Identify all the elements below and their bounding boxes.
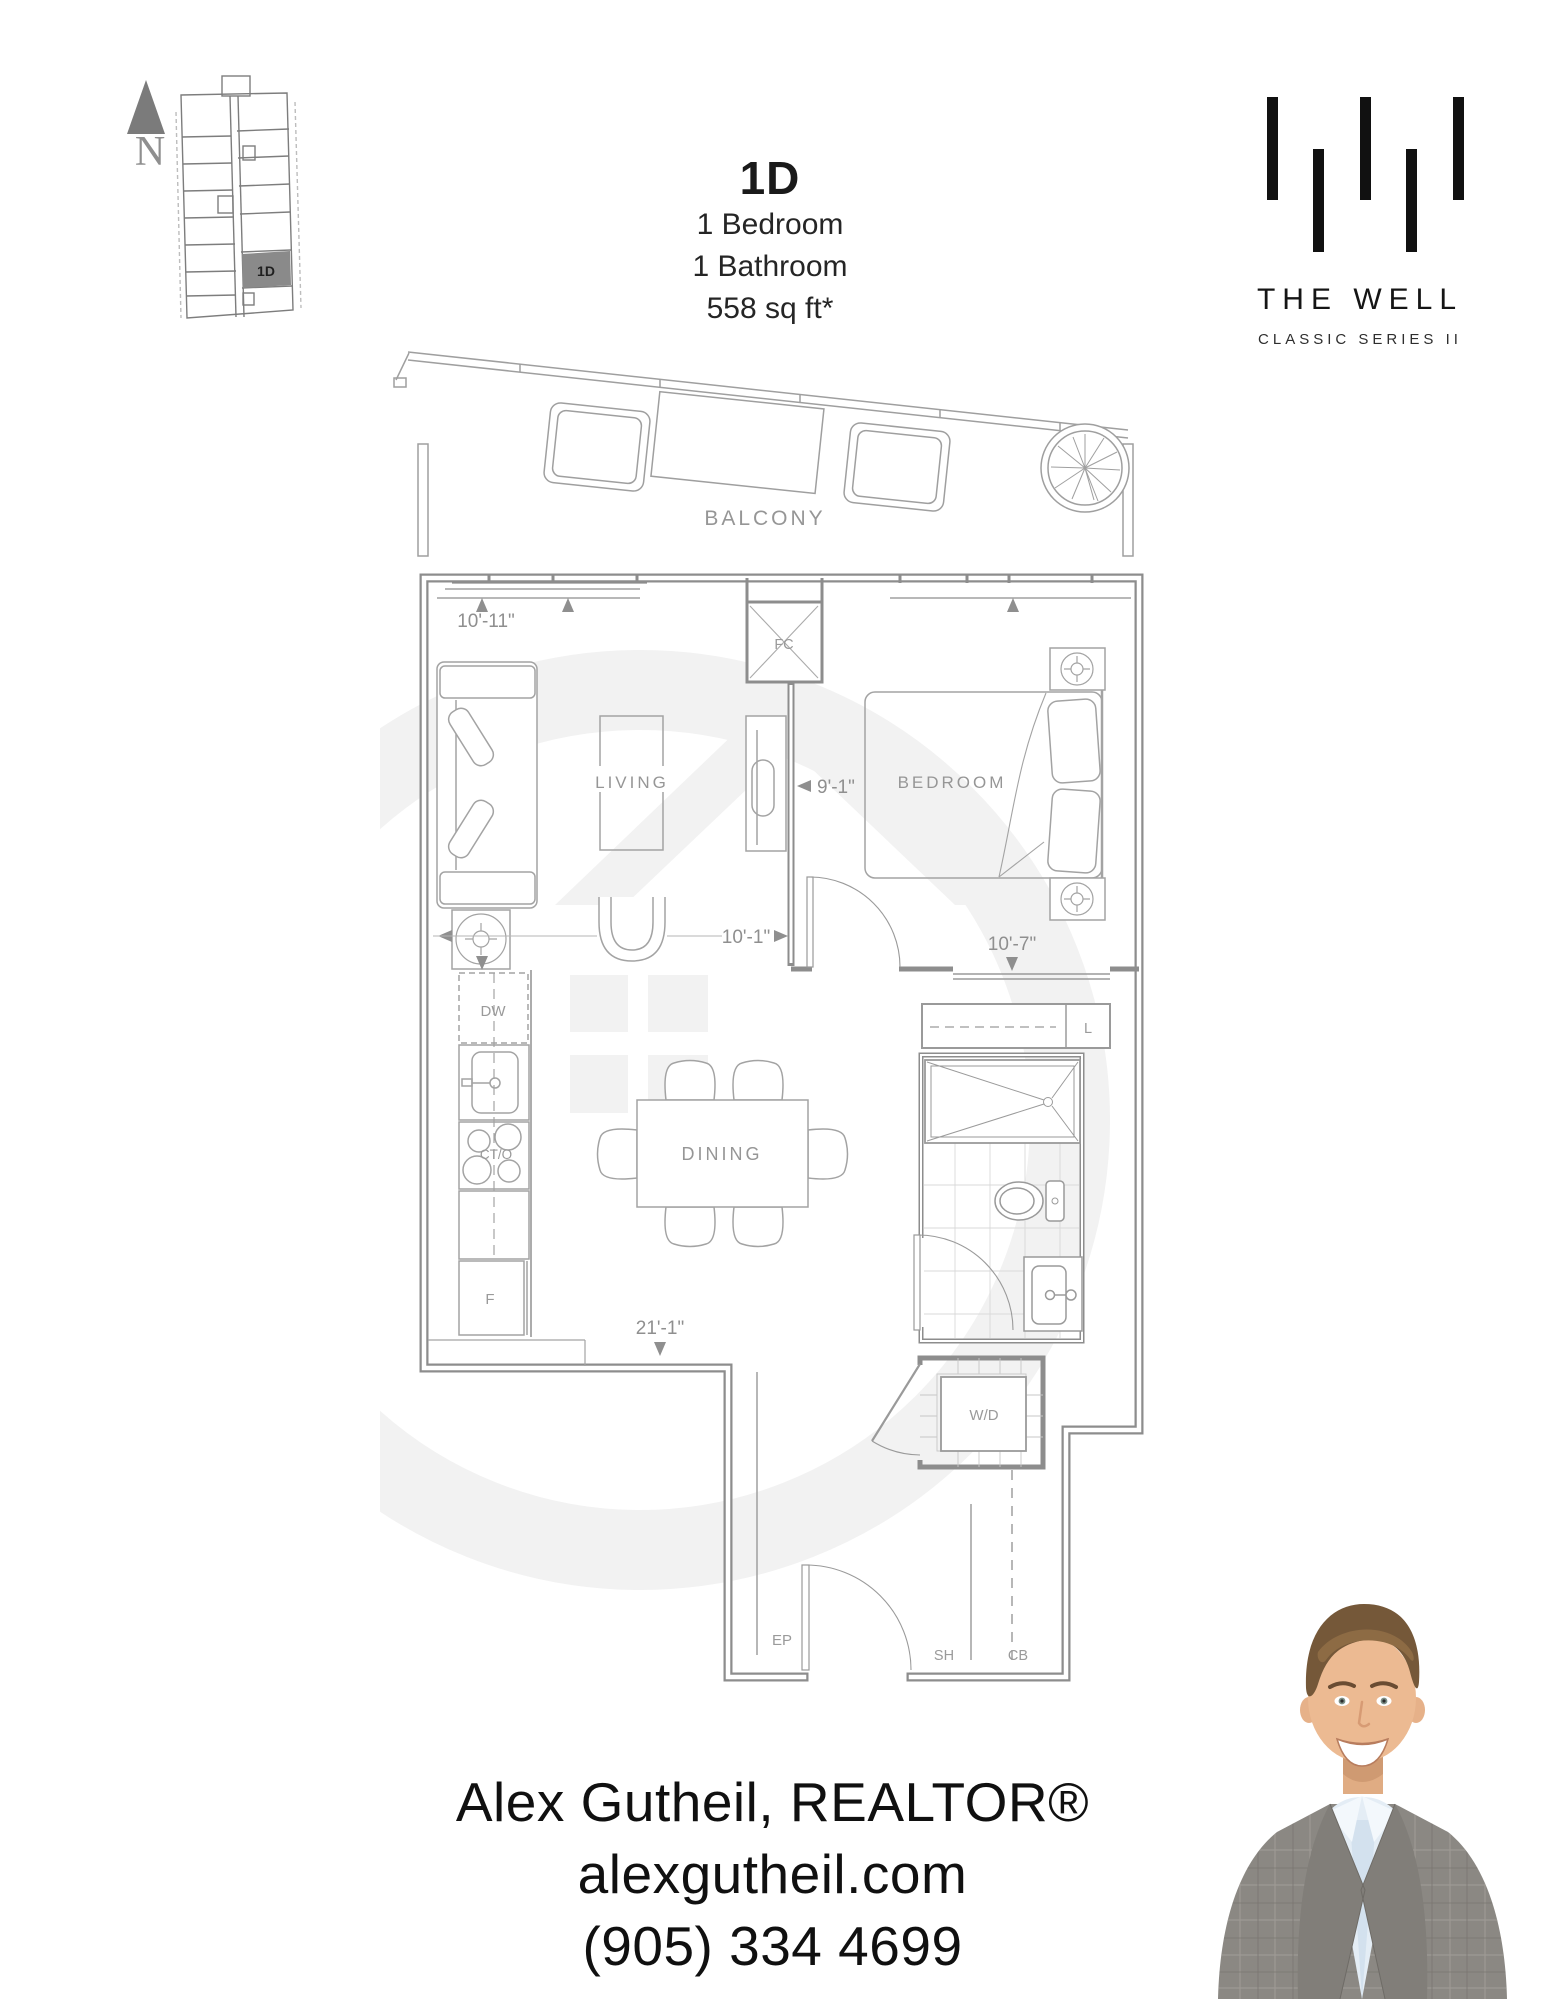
fridge-label: F — [485, 1291, 494, 1308]
the-well-logo-icon — [1255, 92, 1470, 262]
keyplan-unit-label: 1D — [257, 263, 275, 279]
bathroom-count: 1 Bathroom — [520, 246, 1020, 288]
dim-bedroom-depth: 9'-1" — [817, 777, 855, 798]
dim-bedroom-width: 10'-7" — [988, 934, 1036, 955]
bedroom-closet: L — [922, 1004, 1110, 1048]
title-block: 1D 1 Bedroom 1 Bathroom 558 sq ft* — [520, 152, 1020, 330]
balcony-plant — [1041, 424, 1129, 512]
dim-living-width: 10'-11" — [457, 611, 515, 632]
building-keyplan: 1D — [95, 60, 310, 330]
balcony-label: BALCONY — [704, 507, 825, 530]
dim-overall-length: 21'-1" — [636, 1318, 684, 1339]
tv-console — [746, 716, 786, 851]
bedroom-label: BEDROOM — [898, 773, 1007, 792]
dw-label: DW — [481, 1003, 507, 1020]
cto-label: CT/O — [480, 1147, 512, 1162]
bedroom-door — [807, 877, 900, 967]
dining-chair — [733, 1207, 783, 1247]
realtor-photo — [1180, 1560, 1545, 1999]
toilet — [995, 1181, 1064, 1221]
unit-code: 1D — [520, 152, 1020, 204]
living-label-group: LIVING — [595, 766, 669, 792]
entry-door — [802, 1565, 809, 1670]
linen-label: L — [1084, 1021, 1092, 1037]
fan-coil-closet: FC — [747, 602, 822, 682]
north-arrow-icon — [127, 80, 165, 134]
cb-label: CB — [1008, 1648, 1028, 1664]
sofa — [437, 662, 537, 908]
wd-label: W/D — [969, 1407, 998, 1424]
fc-label: FC — [774, 637, 793, 653]
balcony-table — [651, 392, 824, 494]
living-label: LIVING — [595, 773, 669, 792]
balcony-chair-left — [543, 402, 651, 492]
dining-chair — [733, 1061, 783, 1101]
dining-chair — [808, 1129, 848, 1179]
bedroom-count: 1 Bedroom — [520, 204, 1020, 246]
dining-chair — [598, 1129, 638, 1179]
floor-plan: BALCONY FC — [380, 330, 1165, 1700]
dining-chair — [665, 1061, 715, 1101]
sh-label: SH — [934, 1648, 954, 1664]
unit-area: 558 sq ft* — [520, 288, 1020, 330]
nightstand-bottom — [1050, 878, 1105, 920]
brand-series: CLASSIC SERIES II — [1240, 331, 1480, 348]
armchair — [599, 897, 665, 961]
vanity-sink — [1024, 1257, 1082, 1331]
brand-name: THE WELL — [1240, 283, 1480, 317]
north-label: N — [118, 128, 182, 176]
kitchen — [428, 970, 585, 1366]
keyplan-unit-highlight: 1D — [242, 251, 291, 288]
shower — [925, 1060, 1080, 1143]
dim-living-length: 10'-1" — [722, 927, 770, 948]
balcony-chair-right — [843, 422, 951, 512]
ep-label: EP — [772, 1632, 792, 1649]
flyer-page: 1D N 1D 1 Bedroom 1 Bathroom 558 sq ft* … — [0, 0, 1545, 1999]
dining-chair — [665, 1207, 715, 1247]
dining-label: DINING — [682, 1144, 763, 1164]
nightstand-top — [1050, 648, 1105, 690]
